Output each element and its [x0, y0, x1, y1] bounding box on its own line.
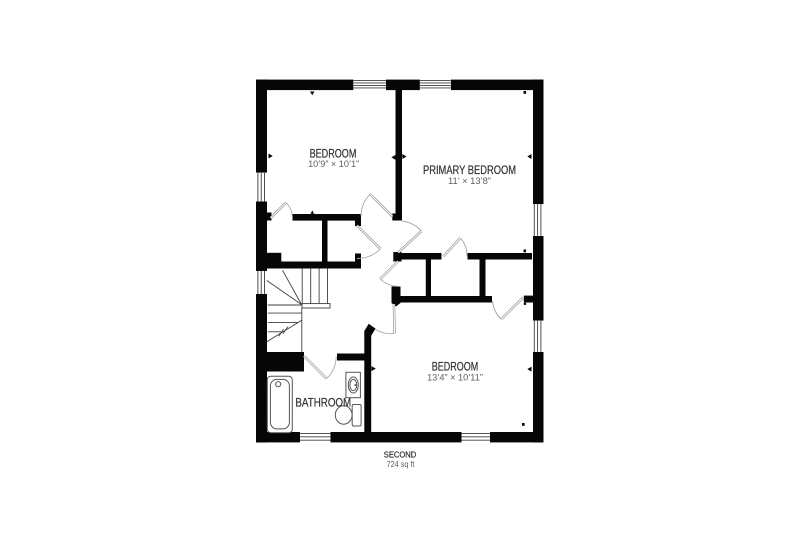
svg-text:SECOND: SECOND: [384, 449, 416, 459]
svg-text:BATHROOM: BATHROOM: [295, 397, 351, 409]
svg-text:BEDROOM: BEDROOM: [432, 361, 479, 373]
svg-text:11’ × 13’8”: 11’ × 13’8”: [448, 176, 491, 186]
svg-text:724 sq ft: 724 sq ft: [387, 460, 416, 469]
svg-text:10’9” × 10’1”: 10’9” × 10’1”: [308, 159, 359, 169]
svg-text:13’4” × 10’11”: 13’4” × 10’11”: [427, 373, 483, 383]
